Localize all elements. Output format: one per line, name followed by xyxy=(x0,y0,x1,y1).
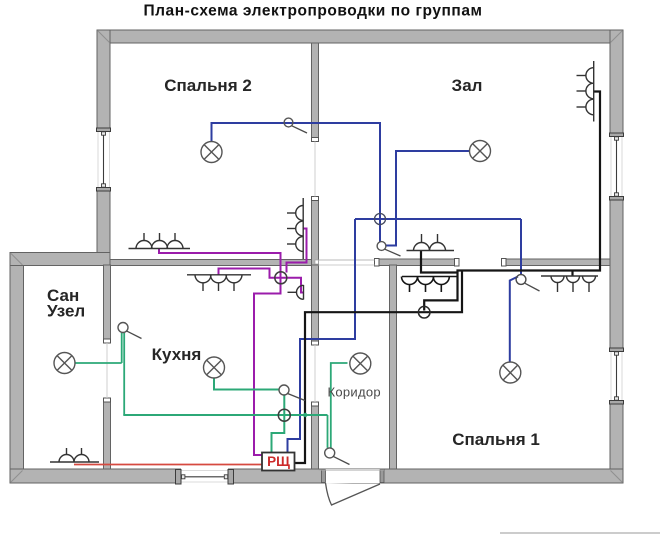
svg-text:Спальня 2: Спальня 2 xyxy=(164,76,252,95)
svg-text:РЩ: РЩ xyxy=(267,454,290,469)
svg-text:Узел: Узел xyxy=(47,302,85,321)
svg-text:Коридор: Коридор xyxy=(328,385,381,400)
svg-text:План-схема электропроводки по: План-схема электропроводки по группам xyxy=(143,3,482,20)
svg-text:Кухня: Кухня xyxy=(152,345,202,364)
svg-text:Спальня 1: Спальня 1 xyxy=(452,430,540,449)
svg-text:Зал: Зал xyxy=(452,76,483,95)
